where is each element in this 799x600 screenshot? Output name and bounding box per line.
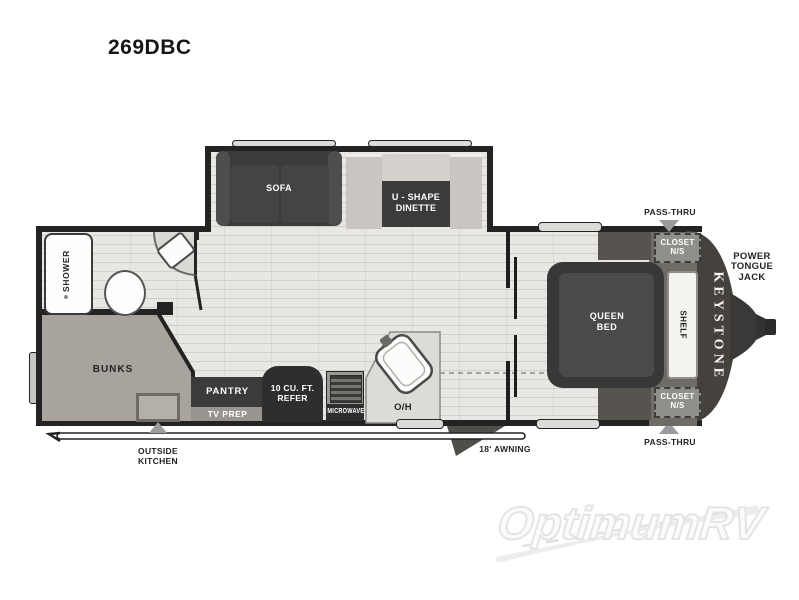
awning-label: 18' AWNING	[468, 444, 542, 454]
pass-thru-top-arrow-icon	[659, 220, 679, 232]
range-grate	[330, 375, 362, 403]
tv-prep-label: TV PREP	[191, 409, 264, 419]
outside-kitchen-hatch	[136, 393, 180, 422]
wardrobe-top	[598, 232, 651, 260]
pantry-label: PANTRY	[191, 386, 264, 397]
overhead-label: O/H	[383, 402, 423, 413]
tongue-jack-body	[730, 293, 758, 361]
sofa-cushion-right	[281, 165, 329, 223]
optimumrv-watermark: OptimumRV	[483, 496, 779, 550]
outside-kitchen-label: OUTSIDE KITCHEN	[128, 446, 188, 466]
window-top	[538, 222, 602, 232]
closet-top-label: CLOSET N/S	[654, 238, 701, 257]
awning-bar	[57, 433, 525, 439]
power-tongue-jack-label: POWER TONGUE JACK	[720, 252, 784, 283]
bunks-label: BUNKS	[83, 364, 143, 376]
refer-label: 10 CU. FT. REFER	[262, 383, 323, 403]
dinette-bench-right	[450, 154, 482, 229]
pass-thru-bottom-label: PASS-THRU	[642, 437, 698, 447]
shelf-label: SHELF	[678, 295, 687, 355]
rv-floorplan-diagram: 269DBC	[0, 0, 799, 600]
bedroom-wall-seg-3	[514, 335, 517, 397]
shower-label: SHOWER	[61, 236, 71, 306]
sofa-armrest-right	[328, 151, 342, 226]
dinette-bench-left	[346, 154, 382, 229]
dinette-bench-top	[382, 154, 450, 181]
keystone-brand-label: KEYSTONE	[709, 251, 726, 401]
bedroom-wall-seg-1	[506, 230, 510, 288]
window-bottom-left	[396, 419, 444, 429]
window-bottom-right	[536, 419, 600, 429]
microwave-label: MICROWAVE	[327, 408, 362, 416]
sofa-cushion-left	[231, 165, 279, 223]
wardrobe-bottom	[598, 388, 651, 420]
bath-wall-stub	[157, 302, 173, 315]
dinette-label: U - SHAPE DINETTE	[382, 192, 450, 213]
sofa-armrest-left	[216, 151, 230, 226]
bedroom-wall-seg-4	[506, 361, 510, 422]
tongue-jack-hitch	[765, 319, 776, 335]
closet-bottom-label: CLOSET N/S	[654, 392, 701, 411]
toilet	[104, 270, 146, 316]
bedroom-wall-seg-2	[514, 257, 517, 319]
pass-thru-top-label: PASS-THRU	[642, 207, 698, 217]
sofa-label: SOFA	[246, 183, 312, 194]
queen-bed-label: QUEEN BED	[572, 311, 642, 332]
